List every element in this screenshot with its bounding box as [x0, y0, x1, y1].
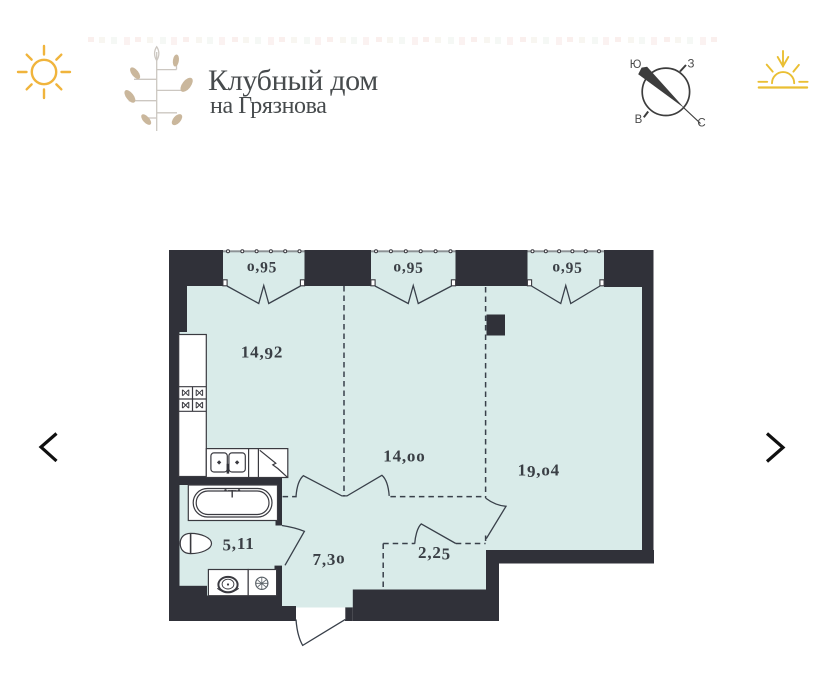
svg-text:14,92: 14,92	[241, 343, 283, 363]
svg-text:на Грязнова: на Грязнова	[210, 93, 327, 119]
svg-text:14,oo: 14,oo	[383, 447, 425, 466]
svg-text:o,95: o,95	[552, 259, 582, 277]
svg-text:В: В	[635, 114, 643, 126]
svg-text:o,95: o,95	[393, 259, 423, 277]
svg-text:2,25: 2,25	[418, 543, 451, 563]
svg-text:З: З	[688, 58, 695, 70]
svg-text:o,95: o,95	[247, 258, 277, 276]
svg-text:5,11: 5,11	[222, 534, 254, 554]
svg-text:7,3o: 7,3o	[313, 549, 346, 569]
svg-text:С: С	[697, 117, 705, 129]
svg-text:Ю: Ю	[630, 59, 642, 71]
svg-text:19,o4: 19,o4	[518, 461, 560, 481]
